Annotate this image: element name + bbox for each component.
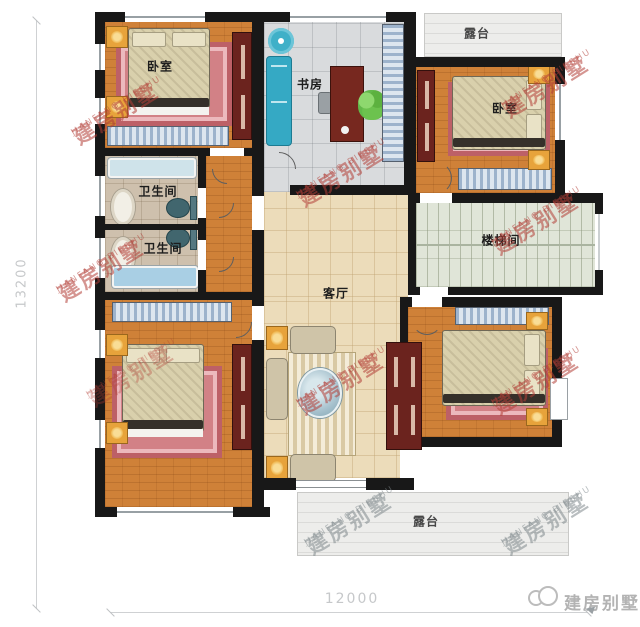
window <box>290 12 386 22</box>
wall <box>400 437 562 447</box>
logo-cloud-icon <box>538 586 558 606</box>
window <box>95 420 105 448</box>
pillow <box>172 32 206 47</box>
room-label-bathroom-lower: 卫生间 <box>143 240 182 257</box>
dresser <box>232 32 252 140</box>
dimension-label-horizontal: 12000 <box>325 591 380 607</box>
room-label-living-room: 客厅 <box>323 285 349 302</box>
dimension-label-vertical: 13200 <box>15 257 30 308</box>
door-opening <box>252 306 264 340</box>
door-opening <box>420 193 452 203</box>
window <box>125 12 205 22</box>
door-opening <box>420 287 448 295</box>
floor-plan: 卧室 书房 卧室 卫生间 卫生间 楼梯间 客厅 露台 露台 13200 1200… <box>0 0 640 627</box>
bed-sheet <box>123 429 203 437</box>
room-label-bathroom-upper: 卫生间 <box>138 183 177 200</box>
sofa <box>290 454 336 482</box>
dresser <box>232 344 252 450</box>
floor-hall <box>264 192 408 297</box>
room-label-terrace-top: 露台 <box>464 25 490 42</box>
wall <box>198 156 206 292</box>
wall <box>252 478 296 490</box>
sliding-door <box>296 480 366 488</box>
wall <box>412 57 565 67</box>
pillow <box>524 334 540 366</box>
nightstand-lamp <box>526 312 548 330</box>
wardrobe <box>112 302 232 322</box>
wall <box>252 12 264 517</box>
tv-cabinet <box>386 342 422 450</box>
window <box>95 44 105 70</box>
wardrobe <box>458 168 552 190</box>
wardrobe <box>107 126 229 146</box>
toilet-tank <box>190 196 197 220</box>
bed-foot <box>453 138 545 147</box>
bathtub <box>108 158 196 178</box>
room-label-terrace-bottom: 露台 <box>413 513 439 530</box>
dresser <box>417 70 435 162</box>
wall <box>408 193 416 295</box>
door-arc <box>412 305 442 335</box>
side-table <box>266 456 288 480</box>
room-label-study: 书房 <box>297 76 323 93</box>
terrace-top <box>424 13 562 57</box>
nightstand-lamp <box>106 422 128 444</box>
window <box>595 214 603 270</box>
door-arc <box>420 162 452 194</box>
nightstand-lamp <box>106 334 128 356</box>
nightstand-lamp <box>106 26 128 48</box>
toilet <box>166 198 190 218</box>
bed-foot <box>123 420 203 429</box>
sink <box>110 188 136 226</box>
fan-center-dot <box>278 38 284 44</box>
door-opening <box>252 196 264 230</box>
sofa <box>290 326 336 354</box>
side-table <box>266 326 288 350</box>
room-label-bedroom-top-left: 卧室 <box>147 58 173 75</box>
armchair <box>266 358 288 420</box>
desk-knob <box>341 126 349 134</box>
pillow <box>132 32 166 47</box>
dimension-line-horizontal <box>110 612 588 613</box>
wall <box>404 12 416 195</box>
wall <box>105 224 206 230</box>
nightstand-lamp <box>528 150 550 170</box>
window <box>117 507 233 517</box>
window <box>95 330 105 358</box>
logo-text: 建房别墅 <box>564 589 640 614</box>
dimension-line-vertical <box>36 20 37 609</box>
window <box>95 176 105 216</box>
study-sofa <box>266 56 292 146</box>
nightstand-lamp <box>526 408 548 426</box>
wall <box>95 292 252 300</box>
